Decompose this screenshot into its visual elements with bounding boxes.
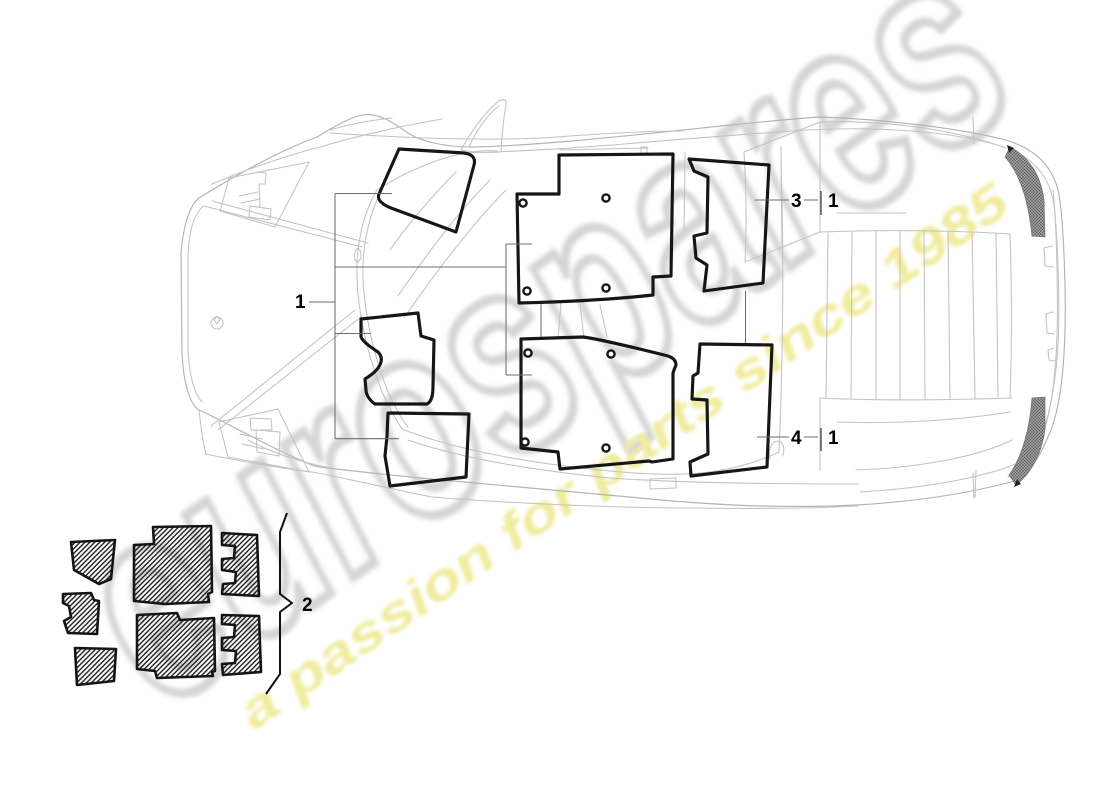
svg-text:4: 4 <box>791 428 802 449</box>
svg-text:1: 1 <box>295 292 306 313</box>
svg-text:1: 1 <box>828 428 839 449</box>
svg-text:2: 2 <box>302 595 313 616</box>
svg-text:3: 3 <box>791 191 802 212</box>
svg-text:1: 1 <box>828 191 839 212</box>
